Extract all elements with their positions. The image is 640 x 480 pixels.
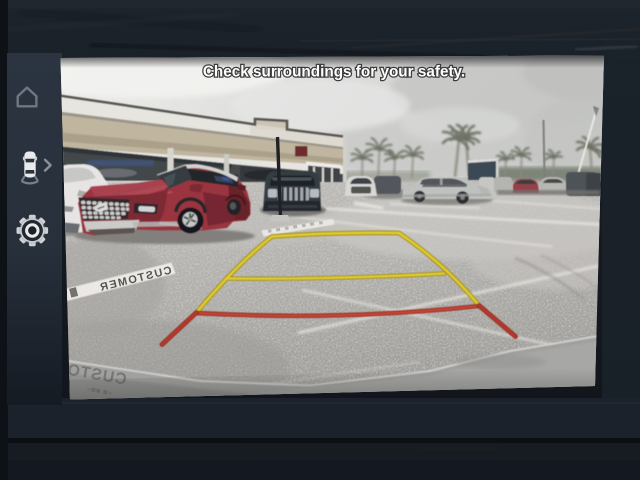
svg-text:Check surroundings for your sa: Check surroundings for your safety.: [203, 64, 465, 81]
